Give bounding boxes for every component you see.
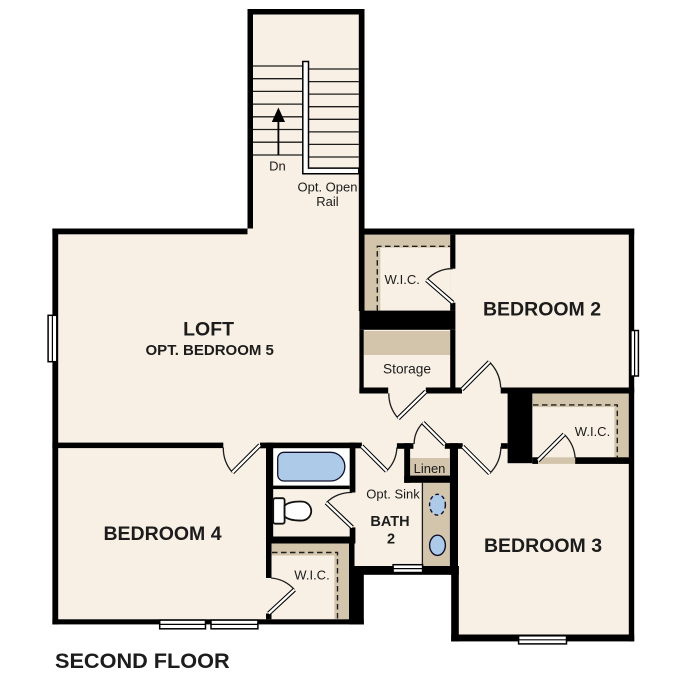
- svg-text:BEDROOM 4: BEDROOM 4: [103, 523, 221, 545]
- svg-text:W.I.C.: W.I.C.: [575, 424, 610, 439]
- svg-text:2: 2: [387, 532, 395, 548]
- svg-text:Opt. Open: Opt. Open: [298, 179, 358, 194]
- svg-text:OPT. BEDROOM 5: OPT. BEDROOM 5: [146, 342, 274, 359]
- svg-text:Linen: Linen: [414, 461, 446, 476]
- svg-text:BATH: BATH: [370, 514, 409, 530]
- svg-text:Rail: Rail: [316, 194, 339, 209]
- svg-text:W.I.C.: W.I.C.: [294, 568, 329, 583]
- svg-text:BEDROOM 3: BEDROOM 3: [484, 535, 602, 557]
- svg-text:W.I.C.: W.I.C.: [385, 272, 420, 287]
- svg-text:BEDROOM 2: BEDROOM 2: [483, 299, 601, 321]
- svg-text:SECOND FLOOR: SECOND FLOOR: [55, 648, 230, 673]
- svg-text:LOFT: LOFT: [183, 319, 234, 341]
- svg-text:Opt. Sink: Opt. Sink: [366, 487, 420, 502]
- svg-text:Dn: Dn: [269, 158, 286, 173]
- svg-text:Storage: Storage: [383, 362, 431, 377]
